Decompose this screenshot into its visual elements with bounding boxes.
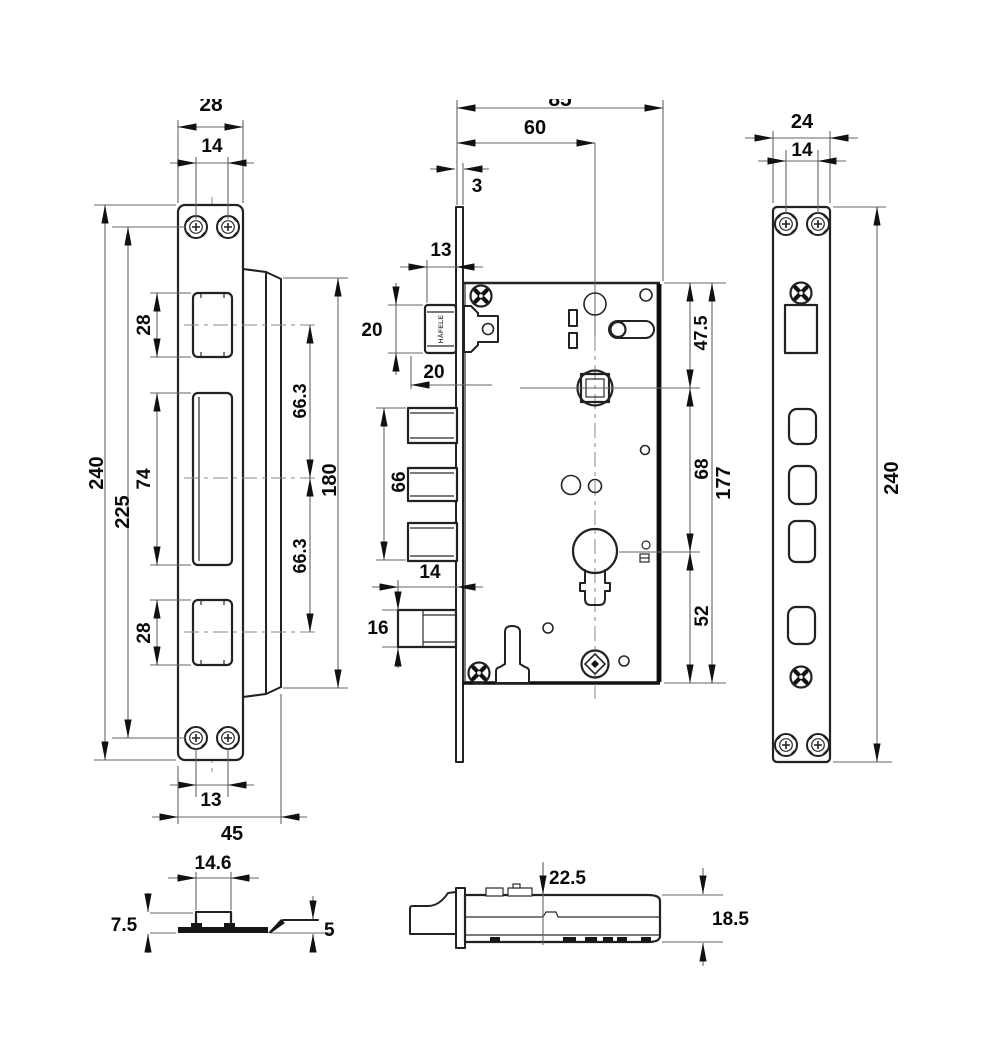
hole-small-right [642, 541, 650, 549]
dim-top-offset: 22.5 [549, 868, 586, 889]
dim-latch-height: 20 [361, 320, 382, 341]
hole-low-right [619, 656, 629, 666]
dim-follower-to-cylinder: 68 [692, 458, 713, 479]
case-section-profile [410, 884, 660, 948]
hole-mid-1 [562, 476, 581, 495]
dim-strike-depth: 45 [221, 823, 243, 845]
lock-case-section-view: 22.5 18.5 [410, 862, 749, 966]
technical-drawing: 14 240 225 28 74 28 66.3 66.3 180 [0, 0, 1000, 1052]
tiny-component [640, 554, 649, 562]
dim-latch-projection: 20 [423, 362, 444, 383]
hole-mid-right [641, 446, 650, 455]
faceplate-opening-1 [789, 409, 816, 444]
hole-top-right [640, 289, 652, 301]
strike-plate-front-view: 14 240 225 28 74 28 66.3 66.3 180 [86, 120, 348, 845]
dim-strike-spacing-lower: 66.3 [290, 538, 310, 573]
dim-faceplate-thickness: 3 [472, 176, 483, 197]
dim-box-depth: 7.5 [111, 915, 138, 936]
faceplate-latch-opening [785, 305, 817, 353]
spring-slot-2 [569, 333, 577, 348]
lock-case-dimensions: 60 85 28 3 13 20 20 66 [199, 88, 735, 683]
dim-case-height: 177 [713, 466, 735, 499]
deadbolt-block-1 [408, 408, 457, 443]
spring-slot-1 [569, 310, 577, 326]
dim-faceplate-height: 240 [881, 461, 903, 494]
deadbolt-block-3 [408, 523, 457, 561]
dim-lip-height: 5 [324, 920, 335, 941]
latch-brand-text: HÄFELE [437, 315, 445, 344]
dim-strike-screw-pitch-top: 14 [201, 136, 223, 157]
deadbolt-block-2 [408, 468, 457, 501]
dim-case-thickness: 18.5 [712, 909, 749, 930]
dim-edge-to-follower: 47.5 [691, 315, 711, 350]
dim-strike-spacing-upper: 66.3 [290, 383, 310, 418]
dim-strike-screw-pitch-bottom: 13 [200, 790, 221, 811]
dim-channel-width: 14.6 [195, 853, 232, 874]
faceplate-front-view: 24 14 240 [745, 111, 903, 762]
dim-cylinder-to-edge: 52 [692, 605, 713, 626]
dim-strike-cutout-top: 28 [134, 314, 155, 335]
dim-strike-plate-width-clipped: 28 [199, 93, 223, 116]
hole-low-left [543, 623, 553, 633]
faceplate-opening-2 [789, 466, 816, 504]
dim-latch-width: 13 [430, 240, 451, 261]
lock-case-side-view: HÄFELE [199, 88, 735, 762]
faceplate-opening-3 [789, 521, 815, 562]
strike-section-profile [178, 912, 318, 933]
strike-cutout-middle [193, 393, 232, 565]
dim-strike-height: 240 [86, 456, 108, 489]
dim-strike-cutout-mid: 74 [134, 468, 155, 490]
slide-slot [609, 321, 654, 338]
dim-strike-lip-span: 180 [319, 463, 341, 496]
dim-case-depth-clipped: 85 [548, 88, 572, 111]
bottom-bolt [398, 610, 456, 647]
dim-bolt-group-height: 66 [389, 471, 410, 492]
strike-plate-lip [243, 269, 281, 697]
dim-faceplate-screw-pitch: 14 [791, 140, 813, 161]
dim-strike-cutout-bot: 28 [134, 622, 155, 643]
dim-bolt-projection: 14 [419, 562, 441, 583]
bottom-follower [582, 651, 609, 678]
faceplate-opening-4 [788, 607, 815, 644]
strike-plate-section-view: 14.6 7.5 5 [111, 853, 335, 953]
dim-backset: 60 [524, 117, 546, 139]
dim-faceplate-width: 24 [791, 111, 814, 133]
drawing-canvas: 14 240 225 28 74 28 66.3 66.3 180 [0, 0, 1000, 1052]
dim-bolt-height: 16 [367, 618, 388, 639]
dim-strike-screw-span: 225 [112, 495, 134, 528]
guide-post [496, 626, 529, 683]
